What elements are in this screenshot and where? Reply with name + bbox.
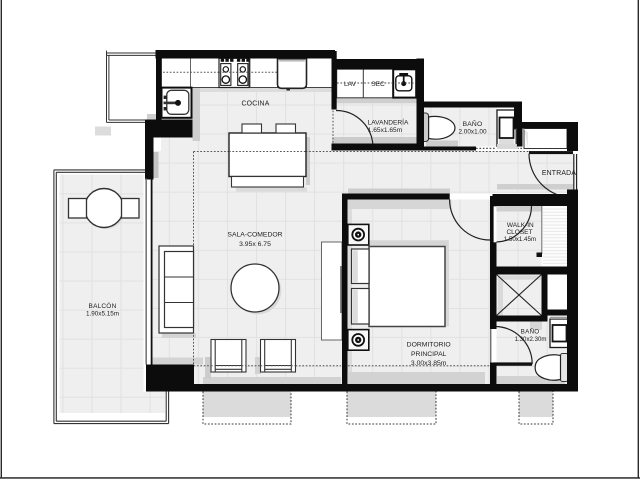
- svg-text:1.50x1.45m: 1.50x1.45m: [504, 236, 536, 243]
- svg-text:LAVANDERÍA: LAVANDERÍA: [368, 117, 409, 126]
- svg-text:3.00x3.85m: 3.00x3.85m: [411, 360, 447, 367]
- svg-text:DORMITORIO: DORMITORIO: [407, 341, 451, 348]
- svg-text:1.65x1.65m: 1.65x1.65m: [368, 127, 403, 134]
- svg-text:2.00x1.00: 2.00x1.00: [458, 128, 487, 135]
- svg-text:ENTRADA: ENTRADA: [542, 170, 577, 177]
- svg-text:BALCÓN: BALCÓN: [89, 301, 117, 310]
- svg-text:BAÑO: BAÑO: [521, 327, 540, 336]
- svg-text:SALA-COMEDOR: SALA-COMEDOR: [227, 232, 282, 239]
- svg-text:SEC: SEC: [371, 81, 385, 88]
- svg-text:LAV: LAV: [344, 81, 357, 88]
- svg-text:1.90x5.15m: 1.90x5.15m: [86, 311, 119, 318]
- svg-text:WALK-IN: WALK-IN: [507, 222, 534, 229]
- svg-text:PRINCIPAL: PRINCIPAL: [411, 351, 447, 358]
- svg-text:3.95x 6.75: 3.95x 6.75: [239, 241, 271, 248]
- svg-text:COCINA: COCINA: [242, 101, 270, 108]
- svg-text:1.30x2.30m: 1.30x2.30m: [515, 336, 547, 343]
- svg-text:BAÑO: BAÑO: [463, 119, 483, 128]
